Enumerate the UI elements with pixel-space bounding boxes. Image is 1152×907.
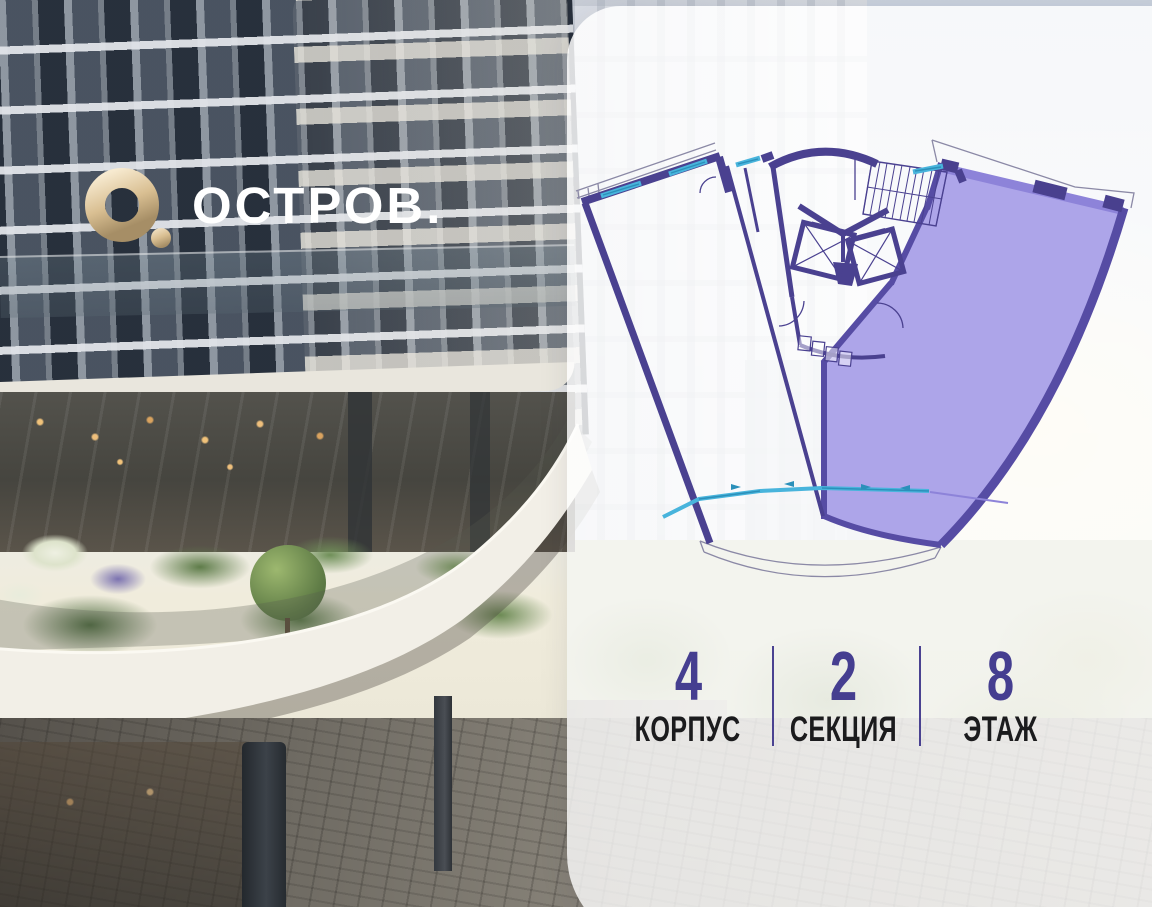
core-arc-wall [770,152,877,167]
info-building: 4 КОРПУС [613,644,763,747]
core-left-wall [773,167,792,297]
left-wing-inner-wall [727,166,823,516]
page-root: ОСТРОВ. [0,0,1152,907]
underpass-shadow [0,742,250,907]
info-section: 2 СЕКЦИЯ [768,644,918,747]
left-wing-unit[interactable] [582,156,823,543]
walkway-pillar [242,742,286,907]
logo-dot-icon [151,228,171,248]
core-chevron-wall [799,206,888,234]
floor-number: 8 [986,644,1013,708]
info-floor: 8 ЭТАЖ [925,644,1075,747]
topiary-tree [250,545,326,621]
building-label: КОРПУС [635,712,741,747]
core-center-pier [833,262,858,286]
section-number: 2 [829,644,856,708]
highlighted-apartment-fill[interactable] [824,164,1124,545]
elevator-left [792,220,854,279]
logo-ring-icon [95,178,149,232]
highlighted-apartment[interactable] [823,163,1124,545]
planter-pot [268,640,308,666]
core-wall-blocks [762,155,963,182]
walkway-pillar-small [434,696,452,871]
left-wing-interior-wall [745,168,758,232]
building-number: 4 [674,644,701,708]
floor-plan [567,6,1152,907]
divider [919,646,921,746]
floor-label: ЭТАЖ [963,712,1037,747]
highlighted-apartment-piers [941,164,958,168]
brand-logo-text: ОСТРОВ. [192,177,443,234]
unit-info: 4 КОРПУС 2 СЕКЦИЯ 8 ЭТАЖ [567,636,1107,766]
left-wing-top-wall [582,156,720,202]
left-wing-outer-wall [585,203,710,543]
left-wing-pier [719,157,729,192]
section-label: СЕКЦИЯ [789,712,896,747]
brand-logo: ОСТРОВ. [84,160,484,260]
left-wing-door-arc [700,177,716,193]
info-panel: 4 КОРПУС 2 СЕКЦИЯ 8 ЭТАЖ [567,6,1152,907]
